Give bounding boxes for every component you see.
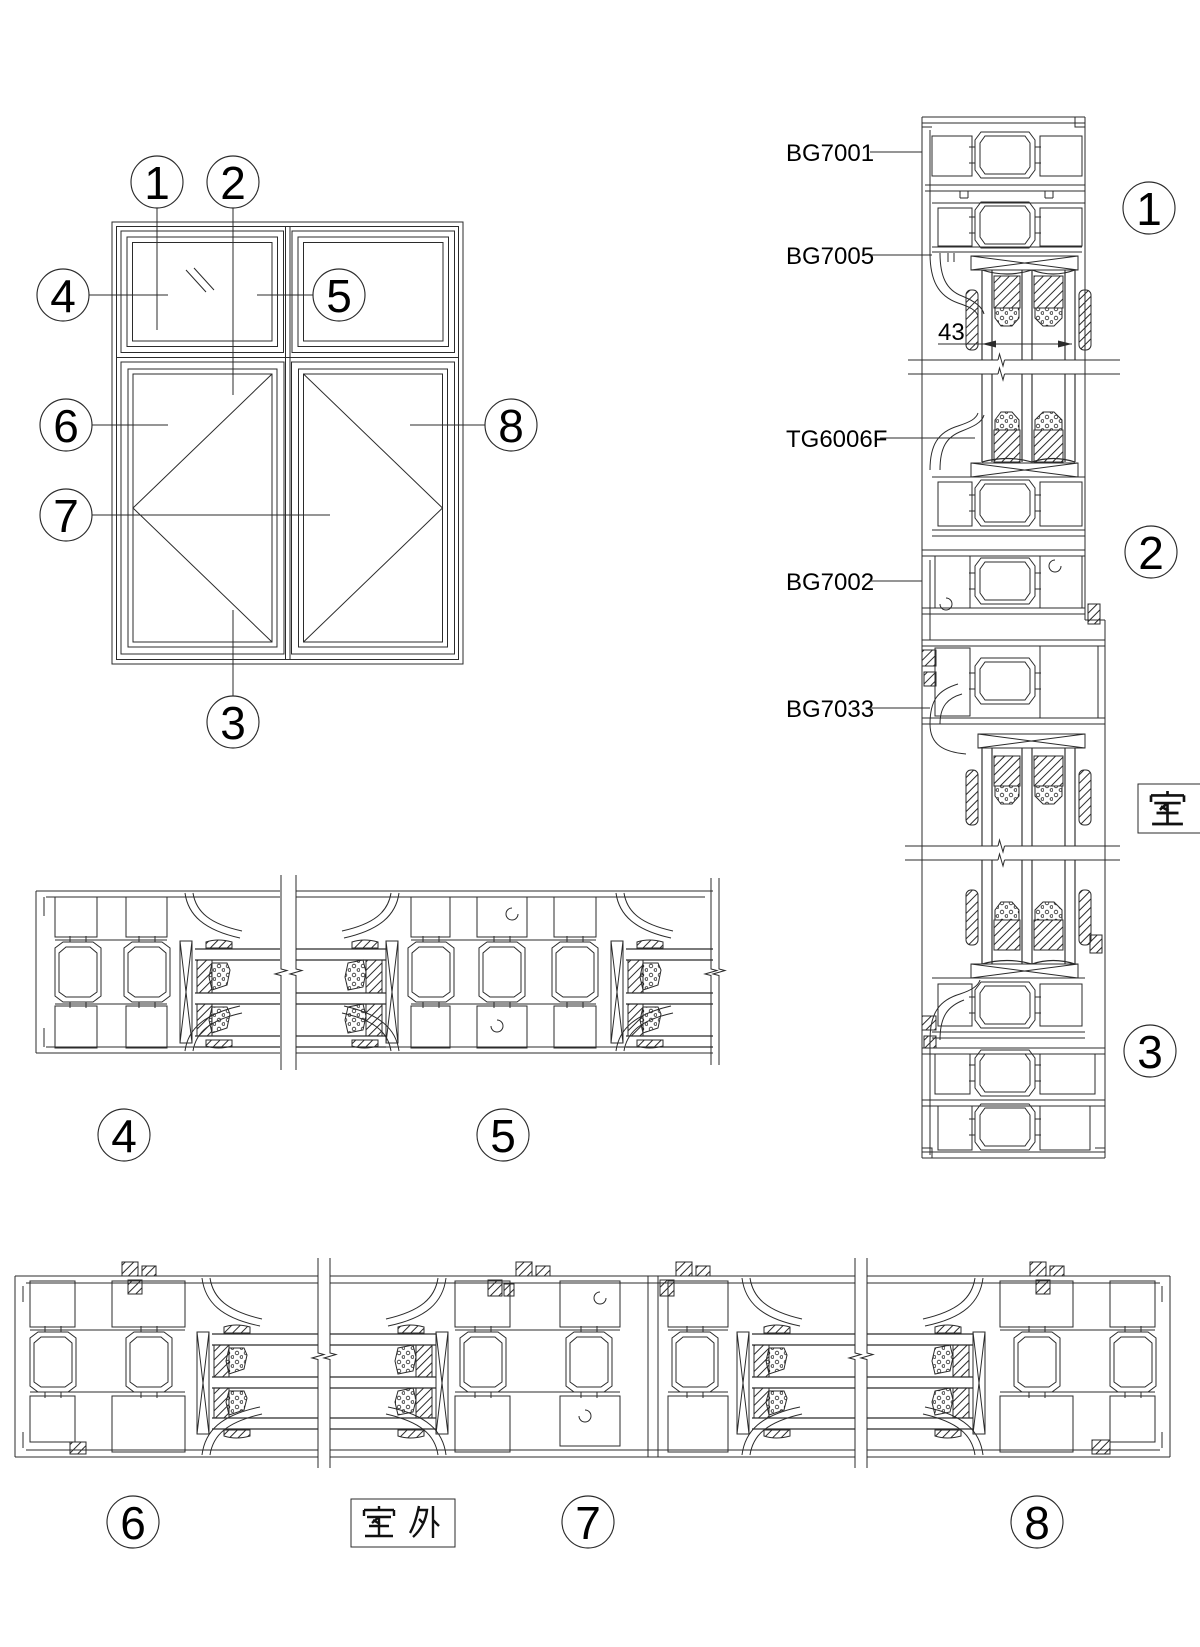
svg-text:7: 7 [53,490,79,542]
svg-text:1: 1 [144,157,170,209]
svg-text:4: 4 [50,270,76,322]
svg-text:8: 8 [1024,1497,1050,1549]
svg-text:BG7005: BG7005 [786,243,874,270]
svg-text:1: 1 [1136,183,1162,235]
svg-text:6: 6 [53,400,79,452]
svg-text:6: 6 [120,1497,146,1549]
svg-text:BG7033: BG7033 [786,696,874,723]
svg-text:5: 5 [490,1110,516,1162]
svg-text:2: 2 [1138,527,1164,579]
svg-text:4: 4 [111,1110,137,1162]
svg-text:3: 3 [1137,1026,1163,1078]
svg-text:TG6006F: TG6006F [786,426,887,453]
svg-text:5: 5 [326,270,352,322]
svg-text:8: 8 [498,400,524,452]
svg-text:3: 3 [220,697,246,749]
svg-text:2: 2 [220,157,246,209]
svg-text:43: 43 [938,319,965,346]
svg-text:BG7002: BG7002 [786,569,874,596]
svg-text:BG7001: BG7001 [786,140,874,167]
svg-text:7: 7 [575,1497,601,1549]
